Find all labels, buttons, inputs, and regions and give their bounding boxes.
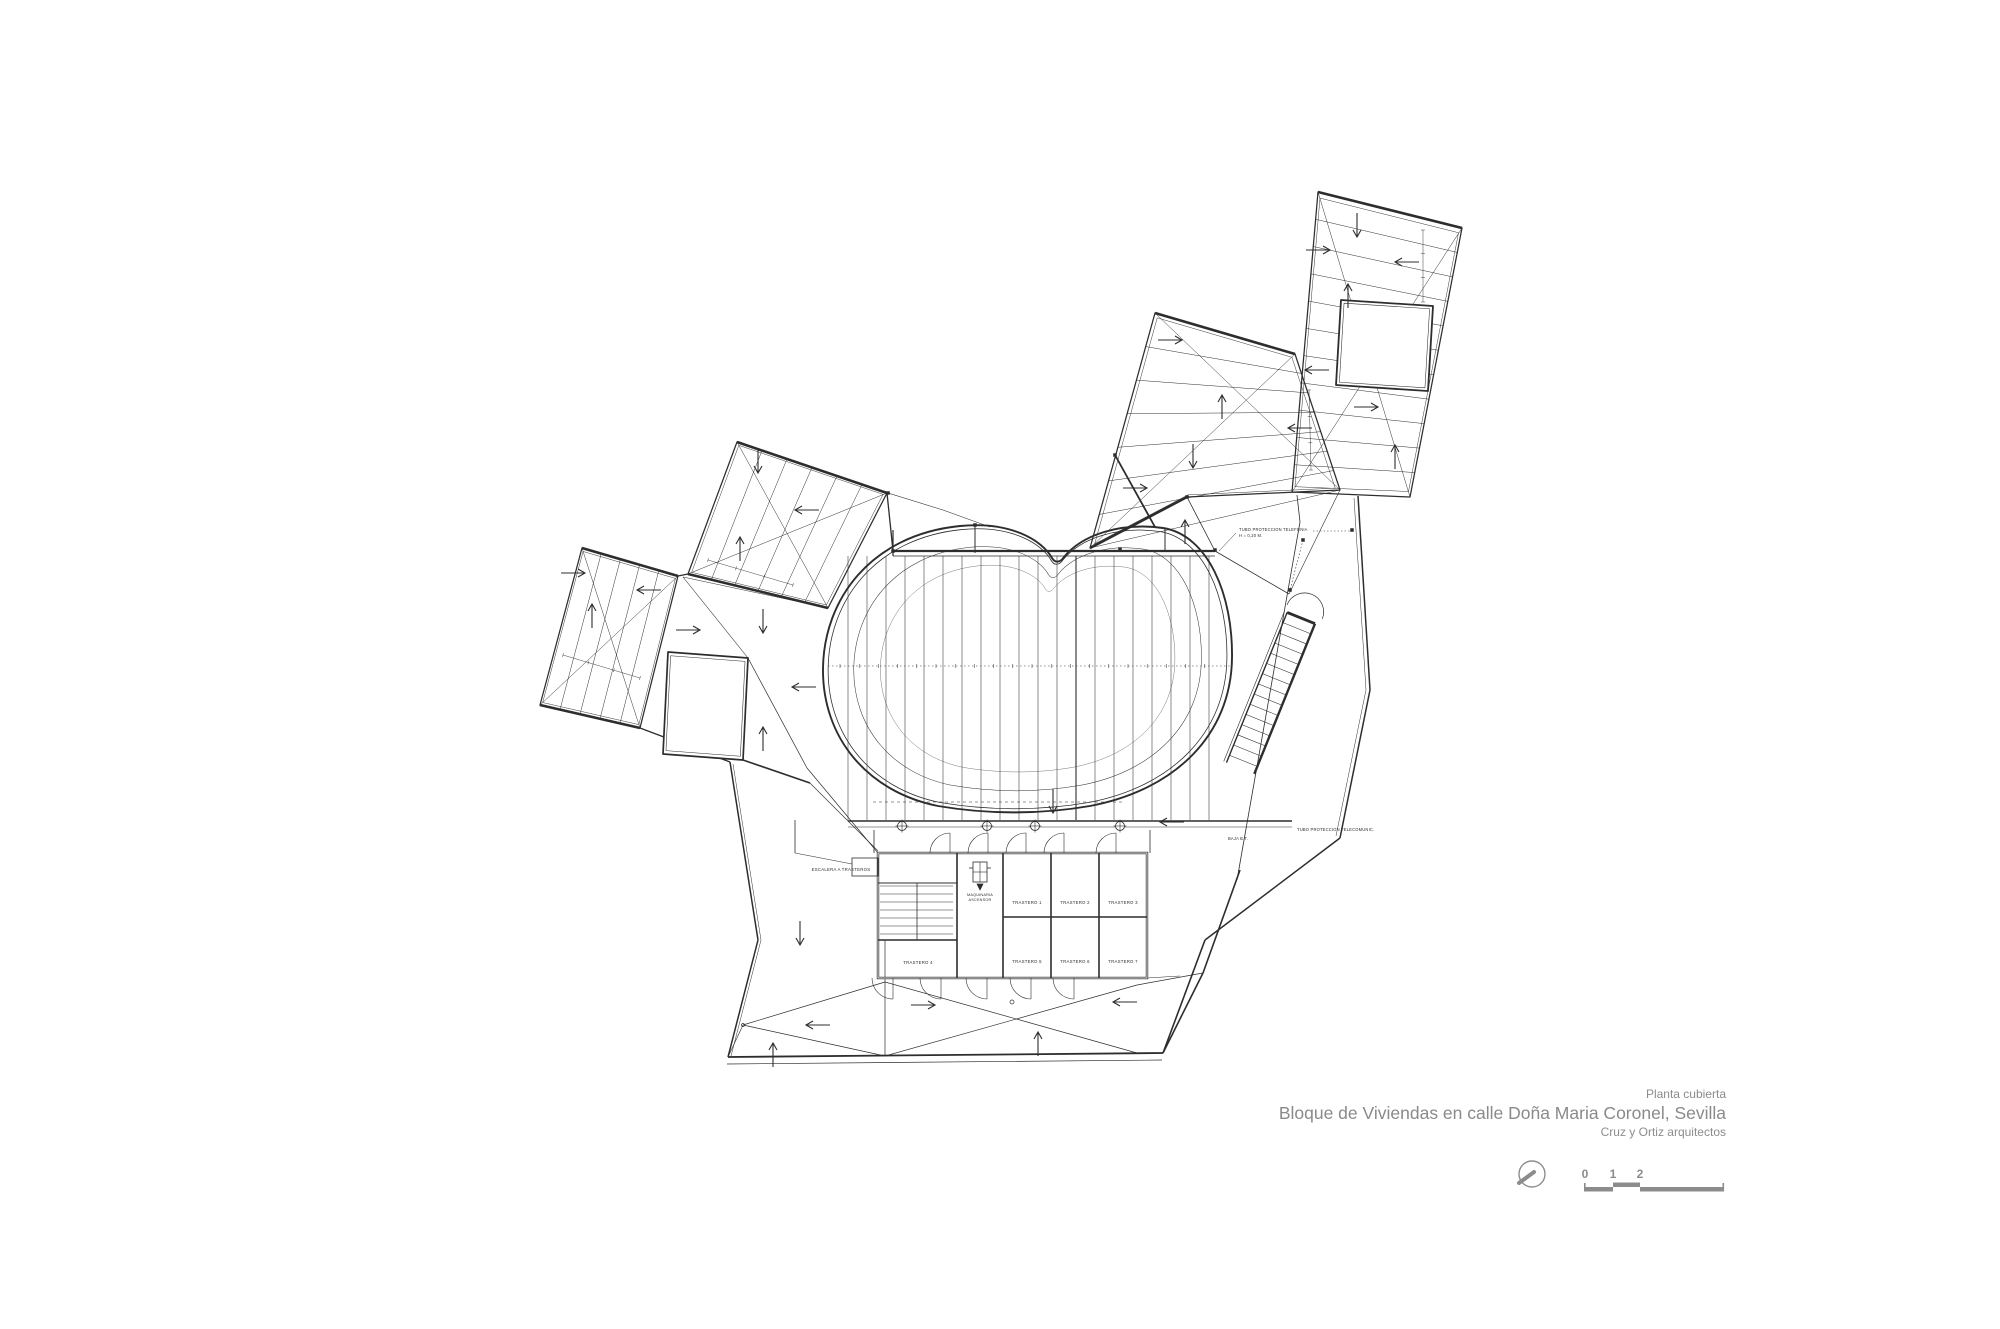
drawing-type-label: Planta cubierta (1279, 1087, 1726, 1101)
scale-bar: 0 1 2 (1582, 1167, 1724, 1192)
room-label-machine-1: MAQUINARIA (967, 893, 993, 897)
room-label-trastero-2: TRASTERO 2 (1060, 900, 1090, 905)
room-label-trastero-5: TRASTERO 5 (1012, 959, 1042, 964)
project-title: Bloque de Viviendas en calle Doña Maria … (1279, 1101, 1726, 1125)
roof-linework (540, 192, 1462, 1067)
room-label-trastero-6: TRASTERO 6 (1060, 959, 1090, 964)
exterior-stair (1224, 587, 1330, 776)
plan-labels: TRASTERO 1 TRASTERO 2 TRASTERO 3 TRASTER… (812, 527, 1375, 965)
north-compass-icon (1519, 1161, 1545, 1187)
room-label-trastero-1: TRASTERO 1 (1012, 900, 1042, 905)
annotation-tubo-telecom: TUBO PROTECCION TELECOMUNIC. (1297, 827, 1374, 832)
room-label-machine-2: ASCENSOR (969, 898, 992, 902)
architect-name: Cruz y Ortiz arquitectos (1279, 1125, 1726, 1139)
room-label-trastero-7: TRASTERO 7 (1108, 959, 1138, 964)
blueprint-page: TRASTERO 1 TRASTERO 2 TRASTERO 3 TRASTER… (0, 0, 2000, 1329)
scale-tick-1: 1 (1610, 1167, 1617, 1181)
scale-tick-0: 0 (1582, 1167, 1589, 1181)
scale-tick-2: 2 (1637, 1167, 1644, 1181)
room-label-trastero-4: TRASTERO 4 (903, 960, 933, 965)
room-label-trastero-3: TRASTERO 3 (1108, 900, 1138, 905)
annotation-tubo-telefonia-2: H = 0,20 M. (1239, 533, 1262, 538)
title-block: Planta cubierta Bloque de Viviendas en c… (1279, 1087, 1726, 1139)
annotation-tubo-telefonia-1: TUBO PROTECCION TELEFONIA (1239, 527, 1308, 532)
annotation-stair: ESCALERA A TRASTEROS (812, 867, 871, 872)
annotation-baja-bt: BAJA B.T. (1228, 836, 1248, 841)
